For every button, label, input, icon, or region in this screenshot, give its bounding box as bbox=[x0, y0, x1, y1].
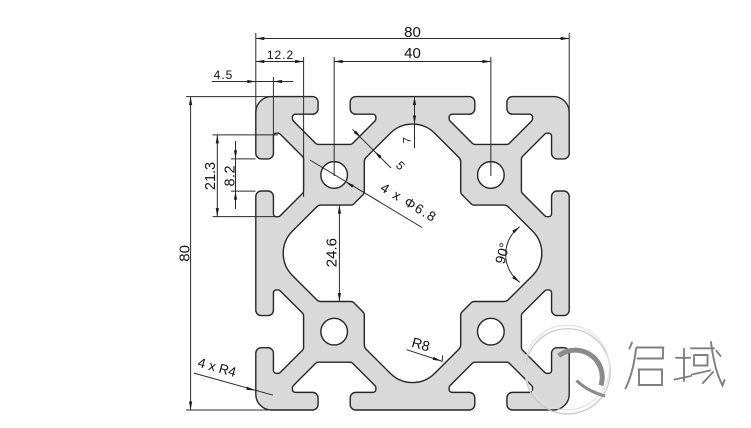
svg-text:4.5: 4.5 bbox=[214, 68, 234, 82]
svg-text:7: 7 bbox=[401, 137, 413, 143]
svg-text:40: 40 bbox=[404, 45, 421, 62]
svg-text:80: 80 bbox=[176, 245, 193, 262]
svg-text:12.2: 12.2 bbox=[267, 48, 294, 62]
svg-text:24.6: 24.6 bbox=[323, 238, 340, 267]
svg-text:21.3: 21.3 bbox=[203, 162, 219, 190]
svg-text:80: 80 bbox=[404, 24, 421, 41]
svg-text:8.2: 8.2 bbox=[223, 165, 239, 187]
